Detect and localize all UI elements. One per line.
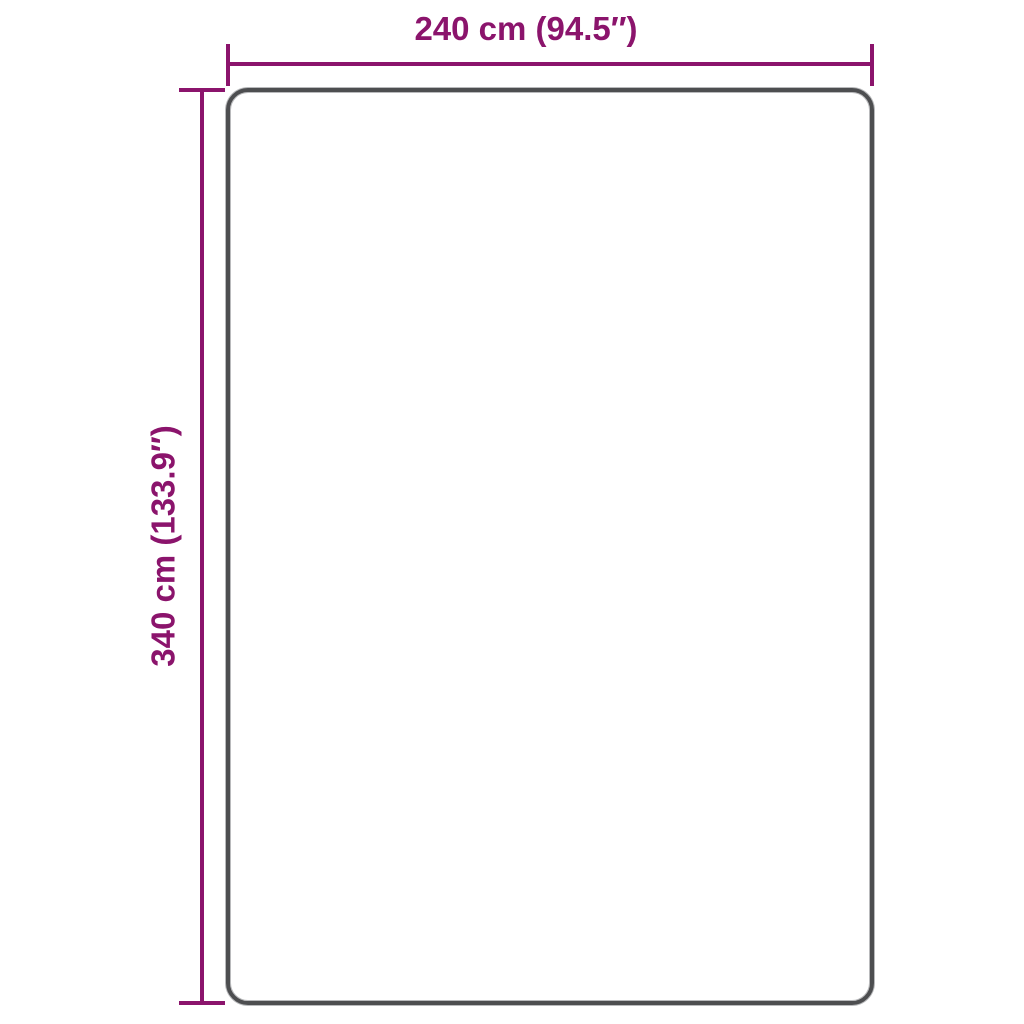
height-dimension-tick-top <box>179 88 225 92</box>
rug-outline <box>226 88 874 1005</box>
width-dimension-tick-left <box>226 44 230 86</box>
height-dimension-line <box>200 90 204 1003</box>
width-dimension-label: 240 cm (94.5″) <box>414 12 637 45</box>
height-dimension-label: 340 cm (133.9″) <box>147 425 180 666</box>
width-dimension-line <box>228 62 872 66</box>
height-dimension-tick-bottom <box>179 1001 225 1005</box>
rug-dimension-diagram: 240 cm (94.5″) 340 cm (133.9″) <box>0 0 1024 1024</box>
width-dimension-tick-right <box>870 44 874 86</box>
